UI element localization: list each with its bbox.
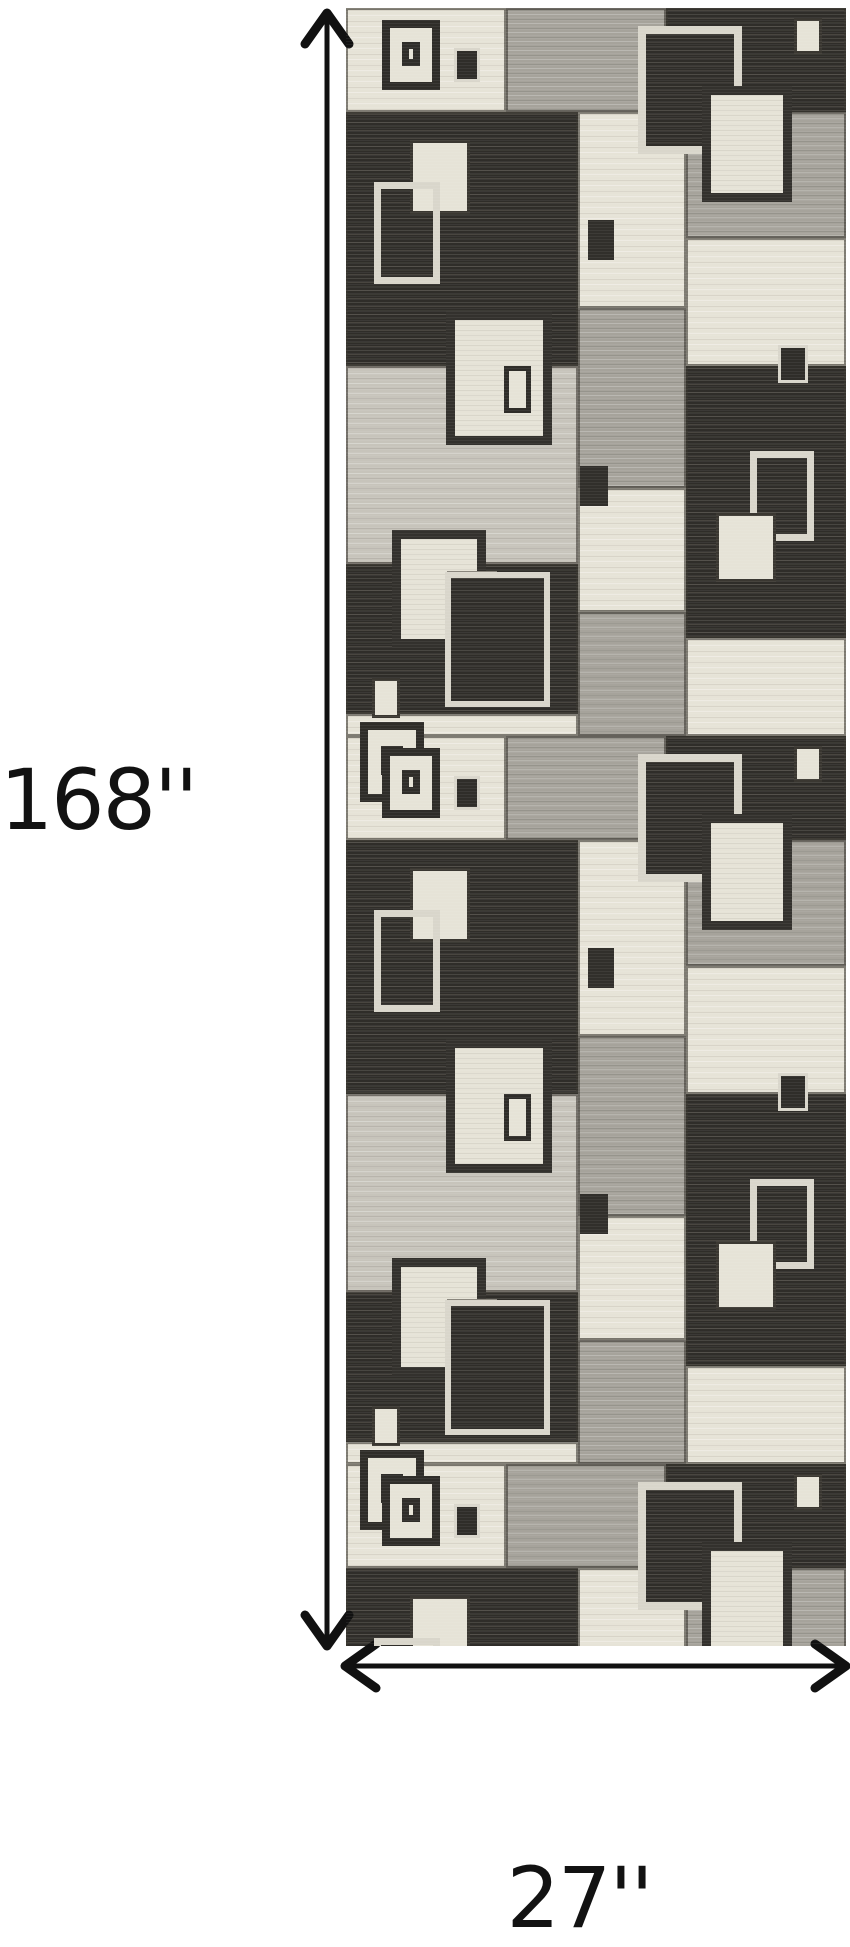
- rug-block-gray: [578, 308, 686, 488]
- rug-motif-small-dark-square: [454, 48, 480, 82]
- width-arrow-head-right-icon: [815, 1644, 846, 1688]
- rug-motif-small-dark-square: [580, 466, 608, 506]
- rug-block-cream: [686, 1366, 846, 1464]
- rug-motif-concentric-square: [382, 748, 440, 818]
- height-arrow-head-down-icon: [305, 1615, 349, 1646]
- rug-motif-small-dark-square: [454, 1504, 480, 1538]
- rug-block-gray: [578, 612, 686, 736]
- rug-motif-concentric-square: [382, 1476, 440, 1546]
- rug-motif-small-cream-square: [716, 513, 776, 582]
- rug-block-gray: [578, 1036, 686, 1216]
- rug-block-cream: [686, 966, 846, 1094]
- rug-motif-small-dark-square: [778, 1073, 808, 1111]
- height-arrow-head-up-icon: [305, 13, 349, 44]
- rug-motif-cream-frame: [374, 1638, 440, 1646]
- width-dimension-label: 27'': [506, 1856, 651, 1940]
- rug-motif-dark-square: [445, 572, 550, 707]
- rug-motif-cream-frame: [374, 910, 440, 1012]
- rug-motif-small-dark-square: [580, 1194, 608, 1234]
- rug-motif-cream-square: [702, 814, 792, 930]
- rug-motif-cream-frame: [374, 182, 440, 284]
- height-dimension-arrow: [305, 13, 349, 1646]
- rug-motif-small-cream-square: [372, 678, 400, 718]
- rug-motif-small-dark-square: [454, 776, 480, 810]
- rug-block-cream: [578, 488, 686, 612]
- rug-motif-framed-square: [446, 1039, 552, 1173]
- rug-motif-small-cream-square: [794, 18, 822, 54]
- rug-motif-small-dark-square: [588, 220, 614, 260]
- rug-image: [346, 8, 846, 1646]
- rug-block-cream: [578, 1216, 686, 1340]
- width-arrow-head-left-icon: [345, 1644, 376, 1688]
- rug-motif-cream-square: [702, 86, 792, 202]
- rug-block-cream: [686, 238, 846, 366]
- rug-motif-small-cream-square: [716, 1241, 776, 1310]
- rug-motif-cream-square: [702, 1542, 792, 1646]
- width-dimension-arrow: [345, 1644, 846, 1688]
- rug-motif-small-cream-square: [372, 1406, 400, 1446]
- rug-motif-small-cream-square: [794, 746, 822, 782]
- rug-motif-dark-square: [445, 1300, 550, 1435]
- rug-motif-small-dark-square: [588, 948, 614, 988]
- rug-motif-concentric-square: [382, 20, 440, 90]
- height-dimension-label: 168'': [0, 758, 196, 842]
- rug-block-cream: [686, 638, 846, 736]
- rug-motif-framed-square: [446, 311, 552, 445]
- rug-motif-small-cream-square: [794, 1474, 822, 1510]
- rug-motif-small-dark-square: [778, 345, 808, 383]
- rug-block-gray: [578, 1340, 686, 1464]
